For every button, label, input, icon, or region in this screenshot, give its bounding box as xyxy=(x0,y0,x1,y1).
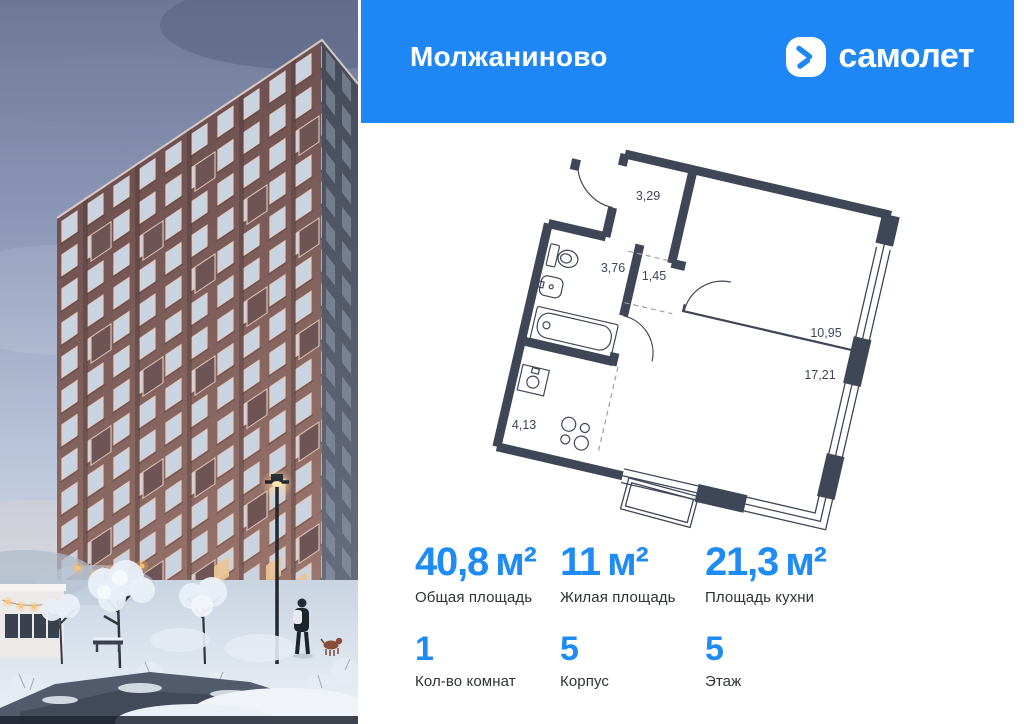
room-area-labels: 3,29 3,76 1,45 10,95 17,21 4,13 xyxy=(512,189,842,432)
stat-value: 11м² xyxy=(560,542,705,582)
stat-unit: м² xyxy=(785,540,826,584)
balcony xyxy=(621,478,699,528)
room-divider-wall xyxy=(683,304,852,350)
stat-number: 1 xyxy=(415,630,433,668)
stat-value: 5 xyxy=(560,632,705,666)
entrance-door-arc xyxy=(570,164,621,208)
stat-label: Корпус xyxy=(560,673,705,690)
kitchen-living-area-label: 17,21 xyxy=(804,368,835,382)
stat-rooms-count: 1 Кол-во комнат xyxy=(415,632,560,690)
window-band xyxy=(621,199,891,530)
window-piers xyxy=(697,187,891,522)
outer-walls xyxy=(497,141,891,522)
stat-label: Жилая площадь xyxy=(560,589,705,606)
stat-label: Этаж xyxy=(705,673,905,690)
pavement-strip xyxy=(0,716,358,724)
stat-unit: м² xyxy=(495,540,536,584)
stat-living-area: 11м² Жилая площадь xyxy=(560,542,705,606)
living-room-area-label: 10,95 xyxy=(810,326,841,340)
building-photo xyxy=(0,0,358,724)
toilet-icon xyxy=(546,244,580,272)
listing-card: Молжаниново самолет xyxy=(0,0,1024,724)
zoning-dashed-lines xyxy=(583,251,684,462)
stat-kitchen-area: 21,3м² Площадь кухни xyxy=(705,542,905,606)
stove-icon xyxy=(557,416,593,452)
stat-label: Площадь кухни xyxy=(705,589,905,606)
low-building xyxy=(0,584,66,658)
bathtub-icon xyxy=(530,306,618,357)
stat-number: 21,3 xyxy=(705,540,778,584)
backpack xyxy=(293,610,302,624)
stat-floor-number: 5 Этаж xyxy=(705,632,905,690)
floor-plan-drawing: 3,29 3,76 1,45 10,95 17,21 4,13 xyxy=(470,138,910,558)
stat-total-area: 40,8м² Общая площадь xyxy=(415,542,560,606)
project-name: Молжаниново xyxy=(410,41,608,73)
brand-name: самолет xyxy=(838,37,974,76)
stat-label: Кол-во комнат xyxy=(415,673,560,690)
stat-number: 40,8 xyxy=(415,540,488,584)
kitchen-zone-area-label: 4,13 xyxy=(512,418,536,432)
interior-walls xyxy=(520,141,706,377)
floor-plan: 3,29 3,76 1,45 10,95 17,21 4,13 xyxy=(470,138,910,558)
winter-scene-illustration xyxy=(0,0,358,724)
apartment-stats: 40,8м² Общая площадь 11м² Жилая площадь … xyxy=(415,542,905,690)
header: Молжаниново самолет xyxy=(361,0,1014,123)
stat-number: 5 xyxy=(560,630,578,668)
hallway-area-label: 3,29 xyxy=(636,189,660,203)
bathroom-door-arc xyxy=(615,316,661,362)
stat-number: 11 xyxy=(560,540,600,584)
samolet-chevron-icon xyxy=(786,37,826,77)
brand-logo: самолет xyxy=(786,37,974,77)
stat-value: 5 xyxy=(705,632,905,666)
stat-building-number: 5 Корпус xyxy=(560,632,705,690)
stat-value: 21,3м² xyxy=(705,542,905,582)
stat-unit: м² xyxy=(607,540,648,584)
stat-number: 5 xyxy=(705,630,723,668)
stat-value: 40,8м² xyxy=(415,542,560,582)
room-door-arc xyxy=(684,273,731,320)
bathroom-area-label: 3,76 xyxy=(601,261,625,275)
stat-value: 1 xyxy=(415,632,560,666)
corridor-area-label: 1,45 xyxy=(642,269,666,283)
bathroom-sink-icon xyxy=(536,274,564,299)
kitchen-sink-icon xyxy=(517,364,549,395)
stat-label: Общая площадь xyxy=(415,589,560,606)
